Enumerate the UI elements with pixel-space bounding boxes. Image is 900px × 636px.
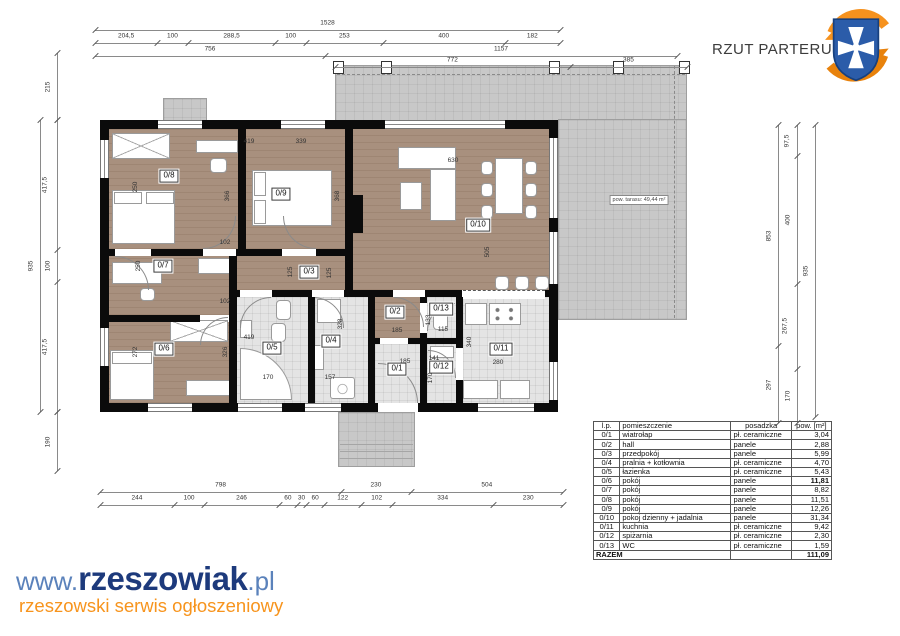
table-cell: 2,30	[791, 532, 831, 541]
watermark-tld: .pl	[247, 566, 274, 596]
dimension-line	[797, 125, 798, 423]
bidet-furniture	[271, 323, 286, 342]
table-row: 0/12spiżarniapł. ceramiczne2,30	[594, 532, 832, 541]
table-header: l.p.	[594, 422, 620, 431]
wall-segment	[345, 195, 363, 233]
table-cell: panele	[731, 504, 791, 513]
site-logo	[812, 2, 900, 88]
table-cell: pralnia + kotłownia	[620, 458, 731, 467]
dimension-value: 102	[371, 496, 382, 503]
dimension-value: 853	[766, 230, 773, 241]
table-total-label: RAZEM	[594, 550, 731, 559]
interior-dimension: 170	[428, 373, 435, 384]
wall-segment	[100, 315, 200, 322]
interior-dimension: 125	[288, 267, 295, 278]
dimension-value: 297	[766, 379, 773, 390]
coffee-table-furniture	[400, 182, 422, 210]
dimension-value: 230	[523, 496, 534, 503]
table-cell: 0/1	[594, 431, 620, 440]
table-cell: 31,34	[791, 513, 831, 522]
dimension-value: 60	[312, 496, 319, 503]
wall-segment	[425, 290, 462, 297]
window	[148, 403, 192, 412]
interior-dimension: 250	[133, 182, 140, 193]
wall-segment	[236, 249, 282, 256]
wall-segment	[368, 297, 375, 403]
table-row: 0/2hallpanele2,88	[594, 440, 832, 449]
window	[238, 403, 282, 412]
chair-furniture	[481, 183, 493, 197]
table-cell: pokój	[620, 504, 731, 513]
watermark-www: www.	[16, 566, 78, 596]
interior-dimension: 250	[136, 261, 143, 272]
dimension-value: 204,5	[118, 34, 134, 41]
dimension-line	[335, 67, 687, 68]
site-watermark: www.rzeszowiak.pl	[16, 560, 275, 598]
pillow-furniture	[254, 172, 266, 196]
wall-segment	[229, 290, 240, 297]
wall-segment	[549, 120, 558, 138]
table-cell: kuchnia	[620, 523, 731, 532]
table-cell: 9,42	[791, 523, 831, 532]
table-cell: pokoj dzienny + jadalnia	[620, 513, 731, 522]
interior-dimension: 280	[493, 360, 504, 367]
bar-stool-furniture	[515, 276, 529, 290]
kitchen-pass-opening	[463, 290, 545, 299]
table-cell: 5,99	[791, 449, 831, 458]
wall-segment	[341, 403, 378, 412]
wall-segment	[308, 297, 315, 403]
chair-furniture	[481, 205, 493, 219]
dimension-value: 334	[437, 496, 448, 503]
dimension-value: 1528	[320, 21, 334, 28]
porch-step	[340, 451, 413, 452]
wall-segment	[238, 129, 246, 249]
desk-furniture	[198, 258, 232, 274]
wall-segment	[100, 120, 109, 140]
table-total-value: 111,09	[791, 550, 831, 559]
room-label-0-7: 0/7	[153, 260, 172, 273]
room-label-0-10: 0/10	[466, 219, 490, 232]
room-label-0-11: 0/11	[490, 343, 513, 356]
wall-segment	[202, 120, 281, 129]
dimension-value: 400	[438, 34, 449, 41]
table-cell: panele	[731, 495, 791, 504]
dimension-line	[57, 120, 58, 412]
table-cell: 11,81	[791, 477, 831, 486]
table-cell: 3,04	[791, 431, 831, 440]
table-cell: pł. ceramiczne	[731, 541, 791, 550]
table-row: 0/8pokójpanele11,51	[594, 495, 832, 504]
bar-stool-furniture	[495, 276, 509, 290]
interior-dimension: 419	[244, 139, 255, 146]
table-cell: pokój	[620, 486, 731, 495]
dimension-line	[57, 53, 58, 120]
wall-segment	[427, 338, 456, 344]
table-cell: spiżarnia	[620, 532, 731, 541]
wall-segment	[192, 403, 238, 412]
interior-dimension: 125	[327, 268, 334, 279]
table-cell: przedpokój	[620, 449, 731, 458]
cooktop-furniture	[489, 303, 521, 325]
wall-segment	[549, 400, 558, 412]
wall-segment	[229, 256, 237, 403]
table-cell: 0/9	[594, 504, 620, 513]
wall-segment	[100, 249, 115, 256]
dimension-value: 935	[28, 261, 35, 272]
pillow-furniture	[146, 192, 174, 204]
table-cell: panele	[731, 513, 791, 522]
fridge-furniture	[465, 303, 487, 325]
dimension-value: 267,5	[783, 318, 790, 334]
interior-dimension: 366	[225, 191, 232, 202]
room-label-0-6: 0/6	[154, 343, 173, 356]
interior-dimension: 630	[448, 158, 459, 165]
table-cell: 12,26	[791, 504, 831, 513]
chair-furniture	[481, 161, 493, 175]
dimension-line	[40, 120, 41, 412]
table-row: 0/6pokójpanele11,81	[594, 477, 832, 486]
interior-dimension: 170	[263, 375, 274, 382]
dimension-line	[95, 56, 677, 57]
roof-overhang-dashed	[337, 74, 685, 75]
dimension-value: 170	[785, 390, 792, 401]
room-area-table: l.p.pomieszczenieposadzkapow. [m²]0/1wia…	[593, 421, 832, 560]
terrace-right	[558, 119, 687, 320]
interior-dimension: 368	[335, 191, 342, 202]
wall-segment	[456, 380, 463, 403]
counter-furniture	[463, 380, 498, 399]
table-cell: panele	[731, 449, 791, 458]
table-cell: pokój	[620, 495, 731, 504]
table-header: pomieszczenie	[620, 422, 731, 431]
table-cell: 0/12	[594, 532, 620, 541]
dimension-value: 417,5	[43, 177, 50, 193]
table-cell: wiatrołap	[620, 431, 731, 440]
table-cell: pł. ceramiczne	[731, 467, 791, 476]
dimension-value: 756	[205, 47, 216, 54]
toilet-furniture	[276, 300, 291, 320]
interior-dimension: 272	[133, 347, 140, 358]
porch-step	[340, 458, 413, 459]
table-cell: 5,43	[791, 467, 831, 476]
interior-dimension: 141	[429, 356, 440, 363]
interior-dimension: 185	[392, 328, 403, 335]
table-cell: pł. ceramiczne	[731, 431, 791, 440]
dimension-tick	[560, 502, 566, 508]
interior-dimension: 505	[485, 247, 492, 258]
wall-segment	[418, 403, 478, 412]
dimension-line	[57, 412, 58, 471]
dimension-value: 182	[527, 34, 538, 41]
table-cell: 0/4	[594, 458, 620, 467]
chair-furniture	[525, 183, 537, 197]
interior-dimension: 102	[220, 240, 231, 247]
sofa-furniture	[430, 169, 456, 221]
interior-dimension: 115	[438, 327, 448, 334]
floor-plan-page: 0/10/20/30/40/50/60/70/80/90/100/110/120…	[0, 0, 900, 636]
room-label-0-13: 0/13	[429, 303, 453, 316]
room-label-0-5: 0/5	[262, 342, 281, 355]
table-header-row: l.p.pomieszczenieposadzkapow. [m²]	[594, 422, 832, 431]
dimension-value: 97,5	[784, 134, 791, 147]
pillow-furniture	[114, 192, 142, 204]
terrace-area-label: pow. tarasu: 49,44 m²	[610, 195, 669, 205]
room-label-0-2: 0/2	[385, 306, 404, 319]
table-cell: pokój	[620, 477, 731, 486]
wall-segment	[456, 297, 463, 348]
chair-furniture	[525, 205, 537, 219]
table-cell: pł. ceramiczne	[731, 458, 791, 467]
room-label-0-4: 0/4	[321, 335, 340, 348]
interior-dimension: 340	[467, 337, 474, 348]
dimension-value: 772	[447, 58, 458, 65]
dimension-value: 253	[339, 34, 350, 41]
window	[549, 138, 558, 218]
room-label-0-8: 0/8	[159, 170, 178, 183]
dimension-value: 417,5	[43, 339, 50, 355]
pillow-furniture	[254, 200, 266, 224]
dimension-value: 400	[785, 214, 792, 225]
table-header: posadzka	[731, 422, 791, 431]
table-cell: 8,82	[791, 486, 831, 495]
dining-table-furniture	[495, 158, 523, 214]
table-row: 0/10pokoj dzienny + jadalniapanele31,34	[594, 513, 832, 522]
window	[549, 232, 558, 284]
table-cell: 2,88	[791, 440, 831, 449]
room-label-0-3: 0/3	[299, 266, 318, 279]
dimension-line	[100, 492, 563, 493]
table-cell: 0/2	[594, 440, 620, 449]
dimension-tick	[37, 409, 43, 415]
room-label-0-9: 0/9	[271, 188, 290, 201]
dimension-value: 935	[803, 266, 810, 277]
porch-step	[340, 444, 413, 445]
interior-dimension: 339	[296, 139, 307, 146]
dimension-value: 100	[184, 496, 195, 503]
window	[478, 403, 534, 412]
dimension-line	[95, 30, 560, 31]
window	[100, 140, 109, 178]
watermark-name: rzeszowiak	[78, 560, 247, 597]
dimension-tick	[560, 489, 566, 495]
window	[281, 120, 325, 129]
table-cell: 0/7	[594, 486, 620, 495]
pouf-furniture	[210, 158, 227, 173]
dimension-tick	[557, 27, 563, 33]
window	[385, 120, 505, 129]
table-row: 0/11kuchniapł. ceramiczne9,42	[594, 523, 832, 532]
window	[549, 362, 558, 400]
table-cell: łazienka	[620, 467, 731, 476]
interior-dimension: 419	[244, 335, 255, 342]
wall-segment	[272, 290, 312, 297]
table-cell: 0/3	[594, 449, 620, 458]
interior-dimension: 133	[426, 315, 433, 326]
table-cell: 0/13	[594, 541, 620, 550]
table-cell: pł. ceramiczne	[731, 532, 791, 541]
table-cell: 0/5	[594, 467, 620, 476]
interior-dimension: 157	[325, 375, 336, 382]
dimension-line	[778, 125, 779, 423]
window	[100, 328, 109, 366]
dimension-value: 100	[167, 34, 178, 41]
dimension-value: 230	[370, 483, 381, 490]
table-header: pow. [m²]	[791, 422, 831, 431]
wall-segment	[344, 290, 393, 297]
table-cell: panele	[731, 477, 791, 486]
dimension-tick	[812, 414, 818, 420]
dimension-value: 504	[481, 483, 492, 490]
table-row: 0/3przedpokójpanele5,99	[594, 449, 832, 458]
watermark-tagline: rzeszowski serwis ogłoszeniowy	[19, 595, 283, 617]
table-cell: 0/6	[594, 477, 620, 486]
table-cell: hall	[620, 440, 731, 449]
bar-stool-furniture	[535, 276, 549, 290]
wall-segment	[420, 333, 427, 403]
wall-segment	[375, 338, 380, 344]
wall-segment	[345, 129, 353, 195]
table-cell: 1,59	[791, 541, 831, 550]
table-empty-cell	[731, 550, 791, 559]
chair-furniture	[525, 161, 537, 175]
window	[305, 403, 341, 412]
dimension-value: 798	[215, 483, 226, 490]
dimension-tick	[674, 53, 680, 59]
dimension-value: 215	[45, 81, 52, 92]
dimension-value: 122	[337, 496, 348, 503]
desk-furniture	[186, 380, 230, 396]
table-cell: pł. ceramiczne	[731, 523, 791, 532]
table-cell: panele	[731, 440, 791, 449]
dimension-value: 246	[236, 496, 247, 503]
dimension-value: 100	[285, 34, 296, 41]
dimension-tick	[54, 468, 60, 474]
dimension-value: 60	[284, 496, 291, 503]
wall-segment	[282, 403, 305, 412]
dimension-line	[815, 125, 816, 417]
dimension-value: 190	[45, 436, 52, 447]
table-cell: panele	[731, 486, 791, 495]
interior-dimension: 102	[220, 299, 231, 306]
table-cell: 4,70	[791, 458, 831, 467]
wall-segment	[420, 297, 427, 303]
table-cell: 11,51	[791, 495, 831, 504]
table-total-row: RAZEM111,09	[594, 550, 832, 559]
wardrobe-furniture	[112, 133, 170, 159]
shelf-furniture	[196, 140, 238, 153]
table-cell: WC	[620, 541, 731, 550]
dimension-value: 288,5	[223, 34, 239, 41]
interior-dimension: 185	[400, 359, 411, 366]
interior-dimension: 328	[338, 319, 345, 330]
interior-dimension: 326	[223, 347, 230, 358]
window-pad	[163, 98, 207, 121]
wall-segment	[549, 218, 558, 232]
dimension-value: 30	[298, 496, 305, 503]
table-row: 0/1wiatrołappł. ceramiczne3,04	[594, 431, 832, 440]
kitchen-sink-furniture	[500, 380, 530, 399]
wall-segment	[325, 120, 385, 129]
table-row: 0/13WCpł. ceramiczne1,59	[594, 541, 832, 550]
window	[158, 120, 202, 129]
table-row: 0/5łazienkapł. ceramiczne5,43	[594, 467, 832, 476]
wall-segment	[151, 249, 203, 256]
table-cell: 0/10	[594, 513, 620, 522]
table-row: 0/4pralnia + kotłowniapł. ceramiczne4,70	[594, 458, 832, 467]
wall-segment	[345, 233, 353, 290]
dimension-value: 1157	[494, 47, 508, 54]
dimension-tick	[557, 40, 563, 46]
roof-overhang-dashed	[674, 66, 675, 318]
table-cell: 0/11	[594, 523, 620, 532]
wall-segment	[408, 338, 420, 344]
table-row: 0/7pokójpanele8,82	[594, 486, 832, 495]
wall-segment	[100, 366, 109, 412]
dimension-value: 244	[132, 496, 143, 503]
table-row: 0/9pokójpanele12,26	[594, 504, 832, 513]
dimension-line	[95, 43, 560, 44]
dimension-value: 100	[45, 261, 52, 272]
table-cell: 0/8	[594, 495, 620, 504]
wall-segment	[545, 290, 558, 297]
dimension-value: 385	[623, 58, 634, 65]
